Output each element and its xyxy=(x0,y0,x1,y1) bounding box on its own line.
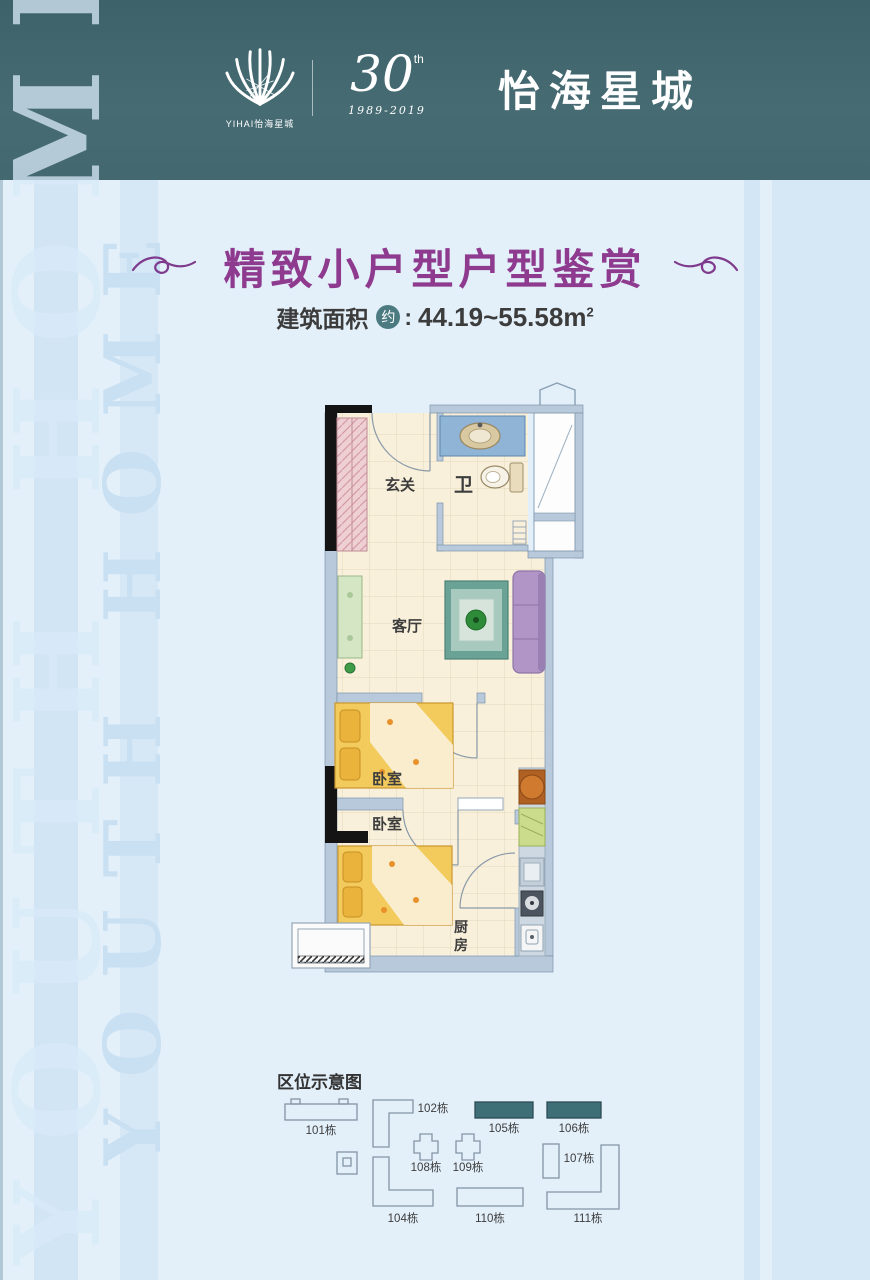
page-title: 精致小户型户型鉴赏 xyxy=(223,236,646,297)
site-plan: 101栋 102栋 104栋 105栋 106栋 107栋 108栋 109栋 … xyxy=(265,1092,645,1232)
building-110 xyxy=(457,1188,523,1206)
building-105-highlighted xyxy=(475,1102,533,1118)
sink-counter-icon xyxy=(440,416,525,456)
building-label-101: 101栋 xyxy=(306,1123,337,1137)
anniversary-suffix: th xyxy=(414,52,424,66)
vent-icon xyxy=(540,383,575,405)
ac-platform xyxy=(292,923,370,968)
title-row: 精致小户型户型鉴赏 xyxy=(0,236,870,297)
watermark-stripe xyxy=(772,180,870,1280)
rug-icon xyxy=(445,581,508,659)
building-label-110: 110栋 xyxy=(475,1211,505,1225)
building-label-105: 105栋 xyxy=(489,1121,520,1135)
room-label-bedroom-upper: 卧室 xyxy=(372,770,402,788)
fridge-icon xyxy=(520,775,544,799)
room-label-bedroom-lower: 卧室 xyxy=(372,815,402,833)
room-label-kitchen-char2: 房 xyxy=(454,937,468,953)
building-label-104: 104栋 xyxy=(388,1211,419,1225)
room-label-foyer: 玄关 xyxy=(385,476,415,494)
building-106-highlighted xyxy=(547,1102,601,1118)
approx-badge: 约 xyxy=(376,305,400,329)
building-label-111: 111栋 xyxy=(574,1211,603,1225)
building-102 xyxy=(373,1100,413,1147)
watermark-stripe xyxy=(34,180,78,1280)
area-colon: : xyxy=(404,304,412,330)
room-label-kitchen-char1: 厨 xyxy=(454,919,468,935)
building-label-107: 107栋 xyxy=(564,1151,595,1165)
tv-cabinet-icon xyxy=(338,576,362,658)
header-divider xyxy=(312,60,313,116)
floor-plan: 玄关 卫 客厅 卧室 卧室 厨 房 xyxy=(288,380,588,992)
header-band: YIHAI怡海星城 30th 1989-2019 怡海星城 xyxy=(0,0,870,180)
building-label-109: 109栋 xyxy=(453,1160,484,1174)
flourish-right-icon xyxy=(673,254,739,280)
building-label-106: 106栋 xyxy=(559,1121,590,1135)
building-108 xyxy=(414,1134,438,1160)
area-value: 44.19~55.58 xyxy=(418,302,563,332)
area-label: 建筑面积 xyxy=(276,306,368,332)
anniversary-number: 30 xyxy=(350,45,414,103)
wall-cap xyxy=(458,798,503,810)
watermark-stripe xyxy=(744,180,760,1280)
room-label-bath: 卫 xyxy=(454,475,473,496)
building-107 xyxy=(543,1144,559,1178)
left-edge-line xyxy=(0,180,3,1280)
area-row: 建筑面积约:44.19~55.58m2 xyxy=(0,300,870,334)
building-small xyxy=(337,1152,357,1174)
building-101 xyxy=(285,1099,357,1120)
anniversary-years: 1989-2019 xyxy=(332,104,442,117)
room-label-living: 客厅 xyxy=(391,617,422,635)
flourish-left-icon xyxy=(131,254,197,280)
yihai-logo-caption: YIHAI怡海星城 xyxy=(210,117,310,130)
building-label-102: 102栋 xyxy=(418,1101,449,1115)
watermark-stripe xyxy=(120,180,158,1280)
plant-icon xyxy=(345,663,355,673)
kitchen-appliances xyxy=(519,768,545,956)
bed-icon-lower xyxy=(338,846,452,925)
building-label-108: 108栋 xyxy=(411,1160,442,1174)
closet-icon xyxy=(337,418,367,551)
site-plan-title: 区位示意图 xyxy=(277,1068,362,1093)
building-109 xyxy=(456,1134,480,1160)
sofa-icon xyxy=(513,571,545,673)
brand-name: 怡海星城 xyxy=(470,58,730,119)
poster-page: YIHAI怡海星城 30th 1989-2019 怡海星城 YOUTH HOME… xyxy=(0,0,870,1280)
area-unit-sup: 2 xyxy=(586,304,593,319)
yihai-fan-icon xyxy=(222,40,298,110)
yihai-logo: YIHAI怡海星城 xyxy=(210,40,310,130)
area-unit: m xyxy=(563,302,586,332)
anniversary-mark: 30th 1989-2019 xyxy=(332,46,442,117)
